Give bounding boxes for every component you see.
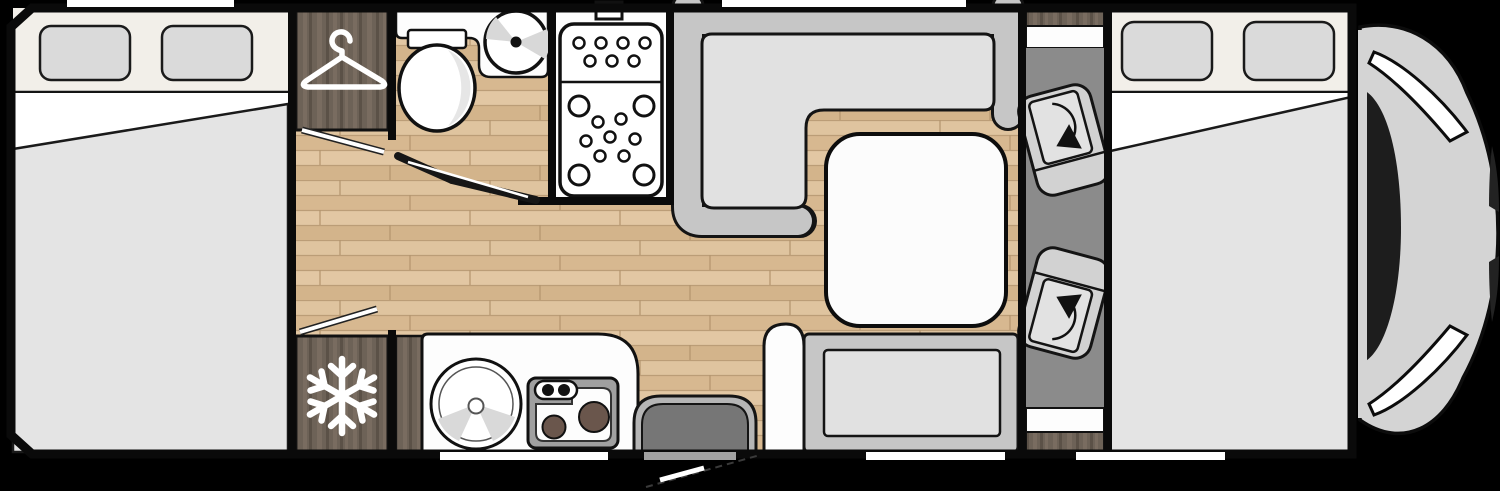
stove-knob-2 bbox=[558, 384, 570, 396]
opening-bench-window bbox=[866, 452, 1005, 460]
cab-step-top bbox=[1026, 26, 1104, 48]
wall-shower-right bbox=[666, 8, 674, 203]
bench-armrest bbox=[764, 324, 804, 454]
wall-bathroom-left bbox=[388, 8, 396, 140]
wall-bathroom-shower bbox=[548, 8, 556, 203]
wall-bedroom bbox=[288, 8, 296, 454]
stove-knob-1 bbox=[542, 384, 554, 396]
dinette-table bbox=[826, 134, 1006, 326]
opening-cab-window bbox=[1076, 452, 1225, 460]
hood-edge bbox=[1358, 30, 1367, 418]
rear-bedroom bbox=[13, 8, 292, 453]
door-mat bbox=[642, 404, 748, 454]
sink-drain bbox=[469, 399, 484, 414]
front-bed-blanket bbox=[1106, 97, 1351, 452]
basin-drain bbox=[511, 37, 522, 48]
wall-cab-left bbox=[1018, 8, 1026, 454]
kitchen-cabinet bbox=[396, 336, 422, 454]
rooflight-rear bbox=[67, 0, 234, 7]
floorplan-svg bbox=[0, 0, 1500, 491]
wall-shower-bottom bbox=[518, 197, 674, 205]
stove-controls bbox=[535, 381, 577, 399]
rear-window-1 bbox=[40, 26, 130, 80]
rooflight-dinette bbox=[722, 0, 966, 7]
front-bedroom bbox=[1104, 8, 1352, 453]
opening-kitchen-window bbox=[440, 452, 608, 460]
wall-fridge-right bbox=[388, 330, 396, 454]
entrance bbox=[634, 396, 756, 454]
cab bbox=[1015, 8, 1113, 454]
front-window-1 bbox=[1122, 22, 1212, 80]
travel-bench bbox=[764, 324, 1018, 454]
kitchen bbox=[422, 334, 638, 454]
rear-bed-blanket bbox=[13, 104, 288, 452]
burner-large bbox=[579, 402, 609, 432]
wall-cab-right bbox=[1104, 8, 1112, 454]
floorplan-canvas bbox=[0, 0, 1500, 491]
front-window-2 bbox=[1244, 22, 1334, 80]
opening-entry-door bbox=[644, 452, 736, 460]
wardrobe bbox=[296, 8, 388, 130]
shower bbox=[556, 2, 666, 201]
burner-small bbox=[543, 416, 566, 439]
rear-window-2 bbox=[162, 26, 252, 80]
bench-cushion bbox=[824, 350, 1000, 436]
cab-step-bottom bbox=[1026, 408, 1104, 432]
